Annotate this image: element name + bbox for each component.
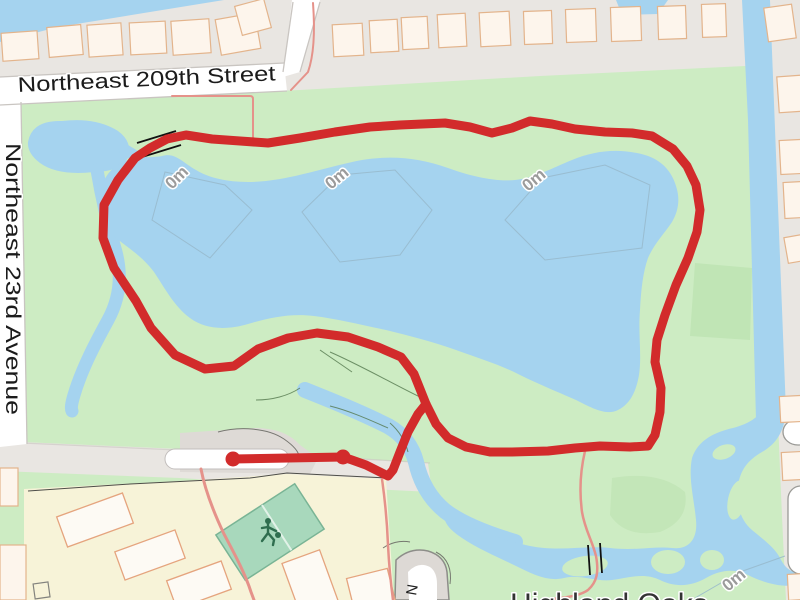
track-endpoint-marker bbox=[226, 452, 241, 467]
map-svg: Northeast 209th Street Northeast 23rd Av… bbox=[0, 0, 800, 600]
track-node-marker bbox=[336, 450, 351, 465]
map-canvas[interactable]: Northeast 209th Street Northeast 23rd Av… bbox=[0, 0, 800, 600]
place-label-highland-oaks: Highland Oaks bbox=[510, 588, 708, 600]
street-label-23rd-ave: Northeast 23rd Avenue bbox=[1, 143, 24, 415]
